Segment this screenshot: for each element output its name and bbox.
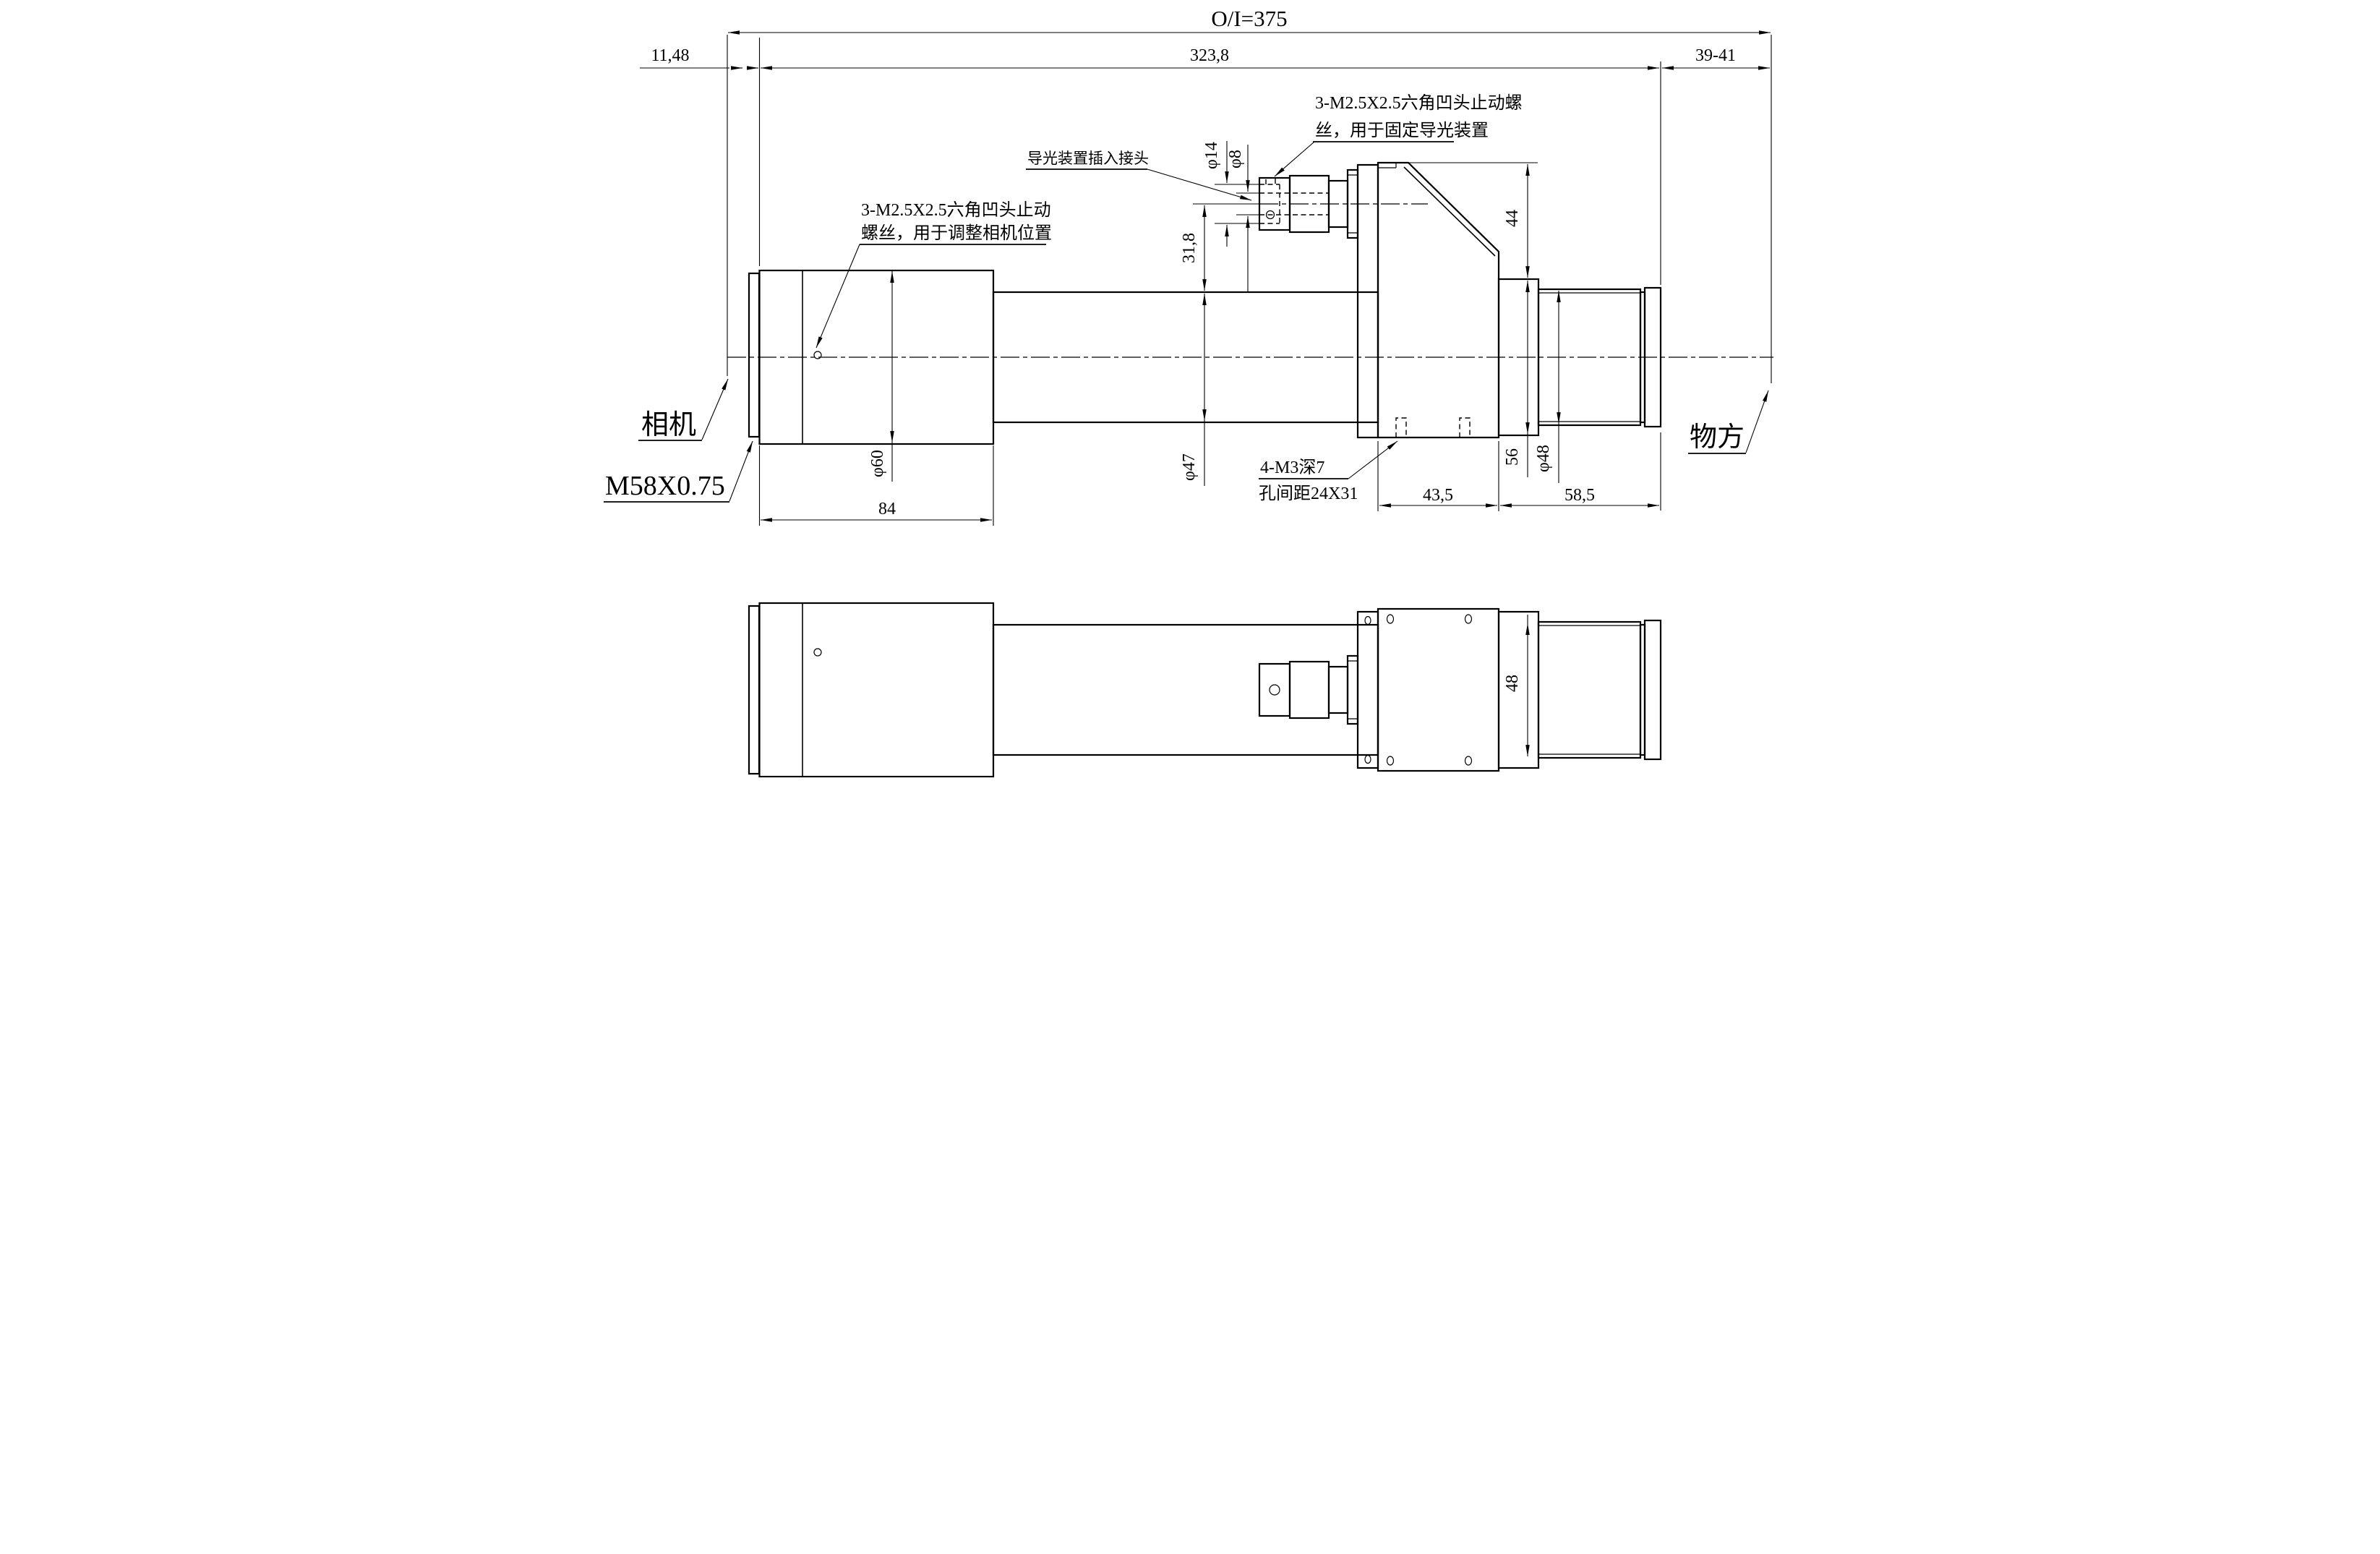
dim-44-label: 44 [1503,210,1522,227]
m3-holes-note-line1: 4-M3深7 [1260,458,1324,477]
camera-leader [702,379,728,440]
light-guide-port-label: 导光装置插入接头 [1027,150,1149,167]
bv-connector-step [1348,656,1358,724]
bv-block-hole-4 [1465,756,1472,765]
guide-screw-note-line1: 3-M2.5X2.5六角凹头止动螺 [1315,93,1523,113]
guide-screw-note-line2: 丝，用于固定导光装置 [1315,121,1489,140]
bv-plate-hole-top [1365,617,1371,625]
camera-set-screw [814,351,821,359]
bv-block-hole-2 [1465,615,1472,623]
bv-m58-mount-plate [749,606,759,774]
thread-leader [729,441,753,501]
bv-phi48-tube-edges [1538,626,1640,754]
m3-holes-hidden [1396,418,1470,437]
bv-phi47-tube [993,625,1378,755]
bv-mount-plate [1358,612,1378,768]
bv-camera-adapter-body [760,603,994,777]
m3-holes-note-line2: 孔间距24X31 [1259,484,1358,503]
technical-drawing: O/I=375 11,48 323,8 39-41 φ60 84 31,8 φ4… [595,0,1785,777]
dim-3238-label: 323,8 [1190,46,1229,65]
dim-phi14-label: φ14 [1202,142,1221,169]
dim-56-label: 56 [1503,448,1522,466]
bv-block-hole-3 [1387,756,1394,765]
camera-screw-leader [816,244,860,348]
thread-label: M58X0.75 [605,471,725,501]
dim-435-label: 43,5 [1423,486,1453,505]
dim-phi60-label: φ60 [868,450,887,477]
object-side-label: 物方 [1690,422,1745,453]
camera-screw-note-line1: 3-M2.5X2.5六角凹头止动 [861,200,1051,220]
object-side-leader [1746,390,1768,453]
m3-holes-leader [1348,441,1397,479]
bv-front-ring-2 [1645,620,1661,759]
dim-585-label: 58,5 [1564,486,1595,505]
bv-block-hole-1 [1387,615,1394,623]
guide-screw-leader [1275,142,1314,176]
dim-84-label: 84 [878,500,896,518]
guide-set-screw-hidden [1266,178,1275,184]
dim-48-label: 48 [1503,675,1522,692]
dim-oi-label: O/I=375 [1211,6,1287,31]
m58-mount-plate [749,273,759,437]
drawing-sheet: O/I=375 11,48 323,8 39-41 φ60 84 31,8 φ4… [595,0,1785,777]
dim-1148-label: 11,48 [651,46,689,65]
dimensions: O/I=375 11,48 323,8 39-41 φ60 84 31,8 φ4… [640,6,1771,526]
dim-phi47-label: φ47 [1180,453,1199,481]
bv-connector-screw-hole [1270,685,1280,695]
bv-phi48-tube [1538,622,1640,758]
dim-phi48-label: φ48 [1534,445,1553,472]
camera-screw-note-line2: 螺丝，用于调整相机位置 [861,223,1052,243]
bottom-view: 48 [749,603,1661,777]
dim-318-label: 31,8 [1180,233,1199,263]
bv-camera-set-screw [814,649,821,656]
mount-plate-side [1358,165,1378,437]
annotations: 相机 M58X0.75 物方 3-M2.5X2.5六角凹头止动 螺丝，用于调整相… [604,93,1768,503]
dim-phi8-label: φ8 [1226,150,1245,168]
bv-connector-seg2 [1290,662,1329,718]
bv-prism-block [1378,609,1499,771]
block-mirror-line [1404,167,1495,256]
bv-connector-seg3 [1329,667,1348,713]
camera-label: 相机 [641,410,696,440]
bv-connector-seg1 [1259,664,1290,716]
dim-3941-label: 39-41 [1695,46,1736,65]
bv-plate-hole-bottom [1365,756,1371,764]
bv-connector-step-lines [1348,661,1358,719]
